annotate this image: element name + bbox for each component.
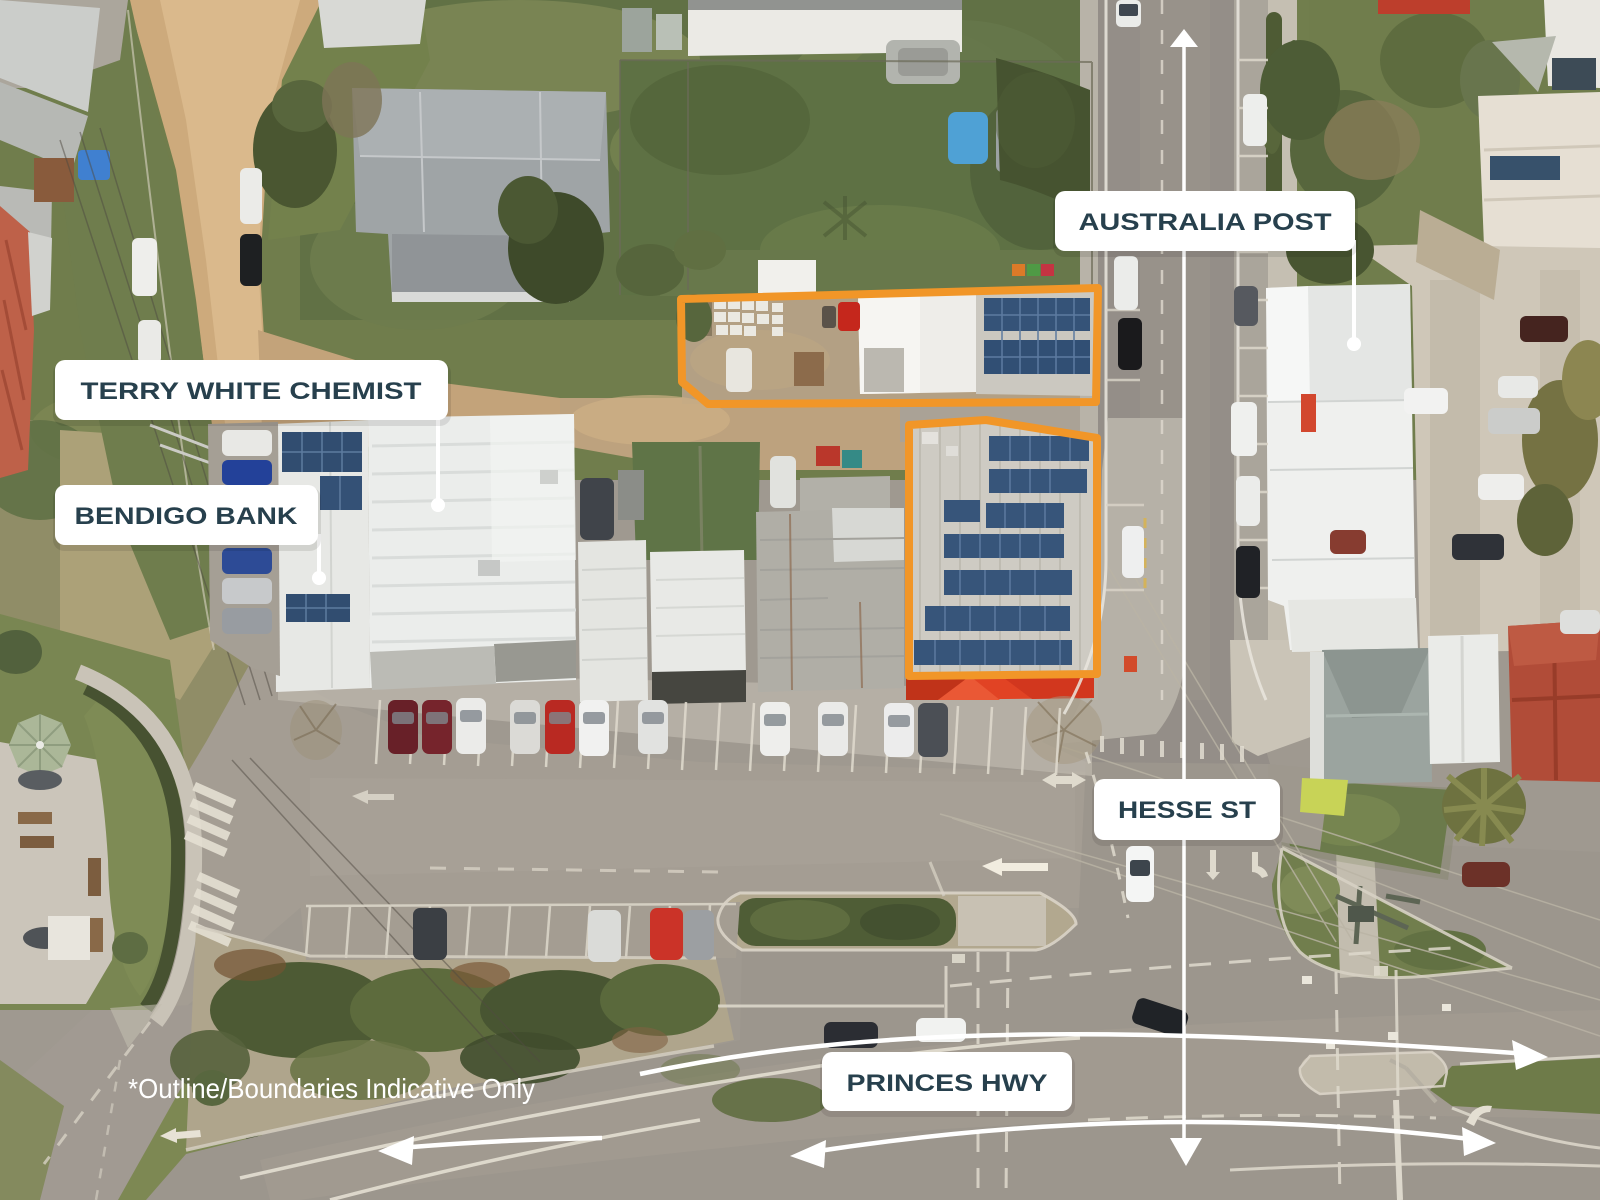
svg-text:AUSTRALIA POST: AUSTRALIA POST [1079,209,1332,236]
svg-text:HESSE ST: HESSE ST [1118,797,1256,824]
svg-text:PRINCES HWY: PRINCES HWY [847,1070,1048,1097]
svg-text:*Outline/Boundaries Indicative: *Outline/Boundaries Indicative Only [128,1073,535,1104]
svg-text:BENDIGO BANK: BENDIGO BANK [75,503,299,530]
svg-text:TERRY WHITE CHEMIST: TERRY WHITE CHEMIST [81,378,422,405]
